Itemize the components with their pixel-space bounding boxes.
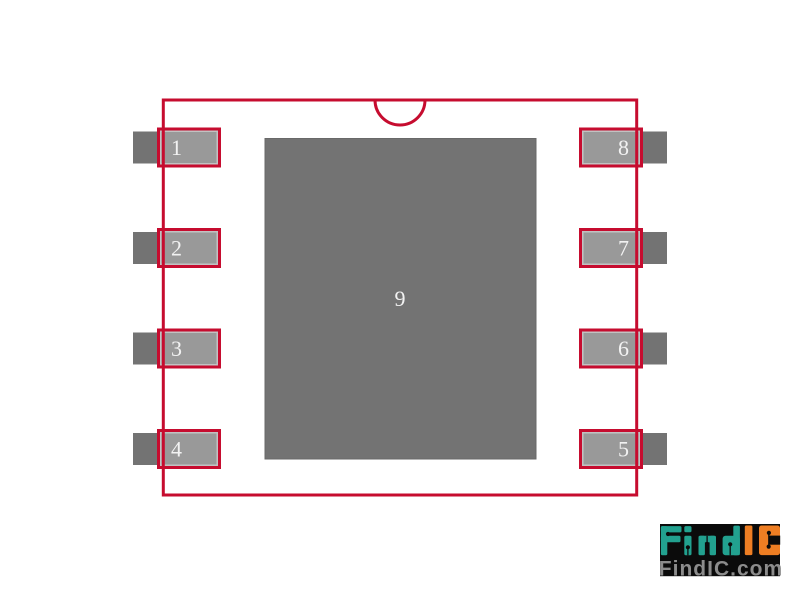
svg-text:2: 2	[171, 236, 182, 261]
svg-text:7: 7	[618, 236, 629, 261]
svg-text:4: 4	[171, 437, 182, 462]
svg-text:5: 5	[618, 437, 629, 462]
svg-text:8: 8	[618, 135, 629, 160]
svg-text:3: 3	[171, 336, 182, 361]
svg-text:1: 1	[171, 135, 182, 160]
svg-text:9: 9	[395, 286, 406, 311]
svg-text:6: 6	[618, 336, 629, 361]
svg-text:FindIC.com: FindIC.com	[659, 558, 783, 581]
